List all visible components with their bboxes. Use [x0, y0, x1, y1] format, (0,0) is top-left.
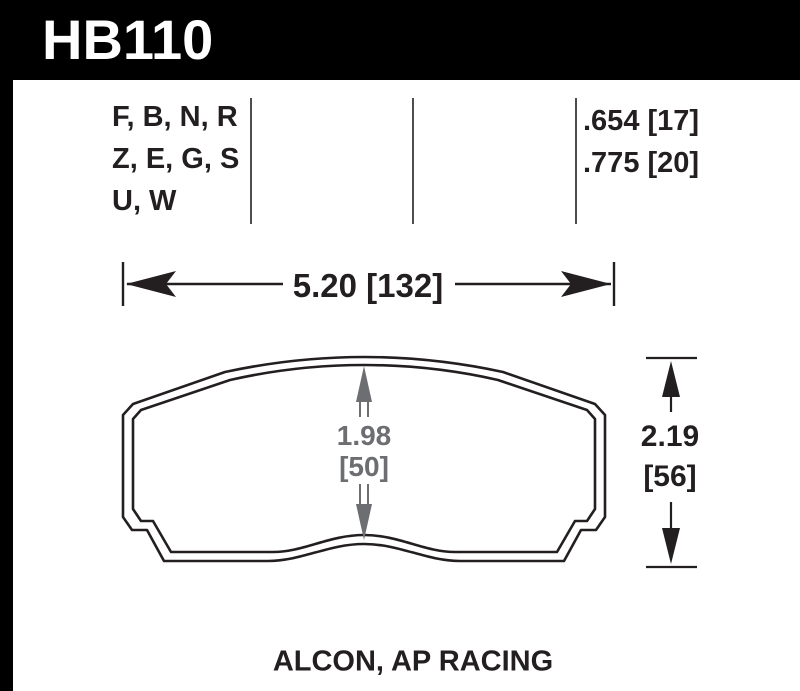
- overall-height-mm-label: [56]: [643, 460, 696, 494]
- pad-outline-drawing: [0, 0, 800, 691]
- height-arrow-down: [662, 528, 680, 564]
- center-arrow-up: [356, 366, 372, 402]
- height-arrow-up: [662, 361, 680, 397]
- catalog-page: HB110 F, B, N, R Z, E, G, S U, W .654 [1…: [0, 0, 800, 691]
- overall-height-in-label: 2.19: [641, 420, 699, 454]
- caliper-applications-label: ALCON, AP RACING: [273, 646, 553, 679]
- center-height-in-label: 1.98: [337, 420, 392, 452]
- center-height-mm-label: [50]: [339, 451, 389, 483]
- width-dimension-label: 5.20 [132]: [293, 267, 443, 305]
